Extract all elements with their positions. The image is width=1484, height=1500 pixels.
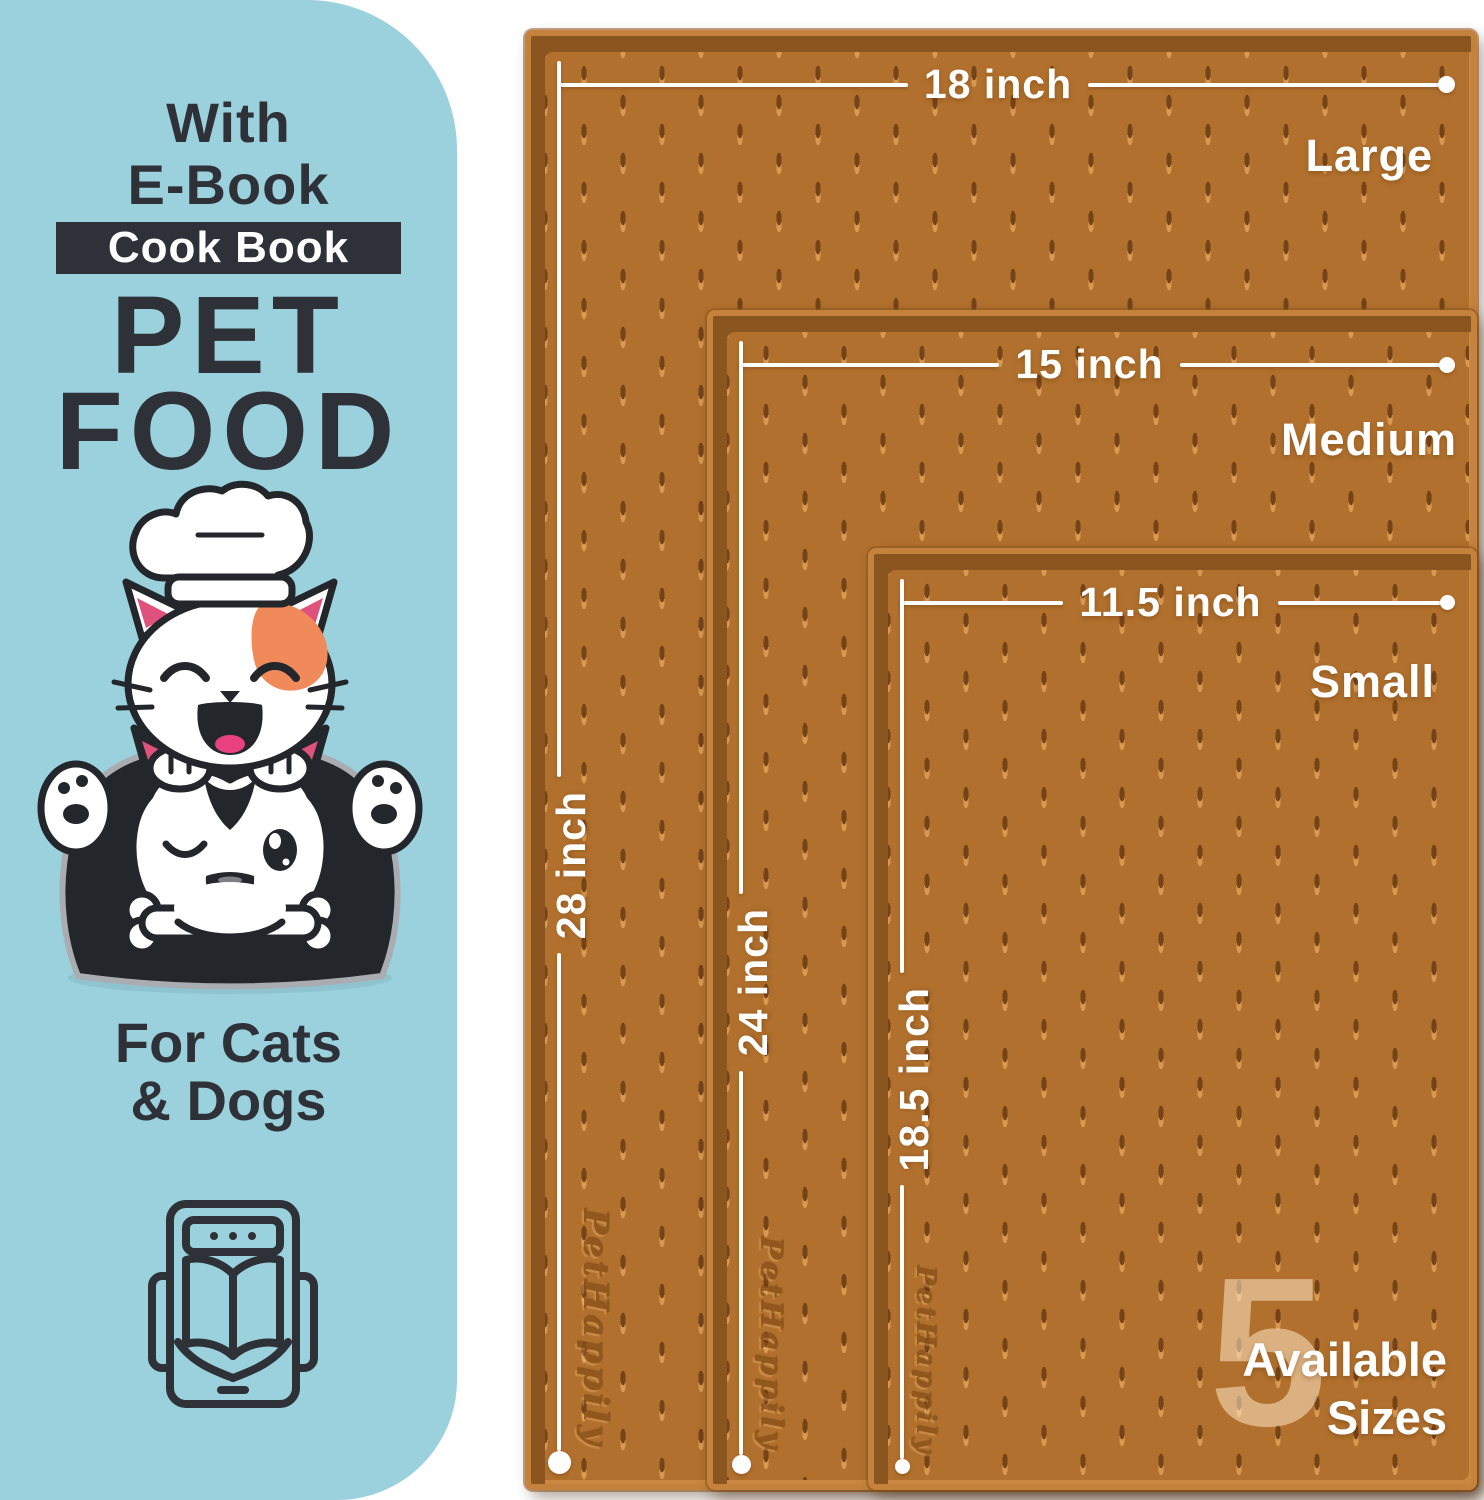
available-sizes-text: Available Sizes: [1242, 1331, 1447, 1446]
measure-line: [739, 363, 999, 367]
measure-dot: [1439, 357, 1455, 373]
measure-line: [739, 1071, 743, 1455]
and-dogs-text: & Dogs: [0, 1072, 457, 1130]
measure-line: [900, 579, 904, 973]
mat-small: 11.5 inch 18.5 inch Small PetHappily 5 A…: [868, 548, 1477, 1490]
measure-dot: [895, 1459, 910, 1474]
chef-cat-and-dog-illustration: [30, 478, 430, 998]
size-name-large: Large: [1305, 130, 1433, 182]
measure-line: [557, 83, 908, 87]
width-label-large: 18 inch: [924, 61, 1072, 108]
chef-hat-icon: [133, 484, 310, 604]
embossed-brand-text: PetHappily: [575, 1209, 615, 1448]
measure-line: [900, 601, 1063, 605]
left-info-panel: With E-Book Cook Book PET FOOD: [0, 0, 457, 1500]
measure-line: [1278, 601, 1441, 605]
height-label-medium: 24 inch: [730, 908, 777, 1056]
width-label-small: 11.5 inch: [1079, 579, 1261, 626]
with-text: With: [0, 92, 457, 154]
measure-dot: [732, 1455, 751, 1474]
width-measurement-large: 18 inch: [557, 61, 1455, 108]
measure-line: [900, 1185, 904, 1459]
measure-dot: [1438, 76, 1455, 93]
audience-text: For Cats & Dogs: [0, 1014, 457, 1130]
ebook-text: E-Book: [0, 154, 457, 216]
cookbook-badge: Cook Book: [56, 222, 401, 274]
measure-line: [739, 341, 743, 894]
product-title: PET FOOD: [0, 288, 457, 480]
measure-dot: [1440, 595, 1455, 610]
cat-tongue: [215, 735, 245, 753]
ebook-callout: With E-Book: [0, 92, 457, 216]
available-text: Available: [1242, 1331, 1447, 1388]
embossed-brand-text: PetHappily: [753, 1237, 788, 1452]
embossed-brand-text: PetHappily: [910, 1266, 940, 1456]
size-name-small: Small: [1310, 656, 1435, 708]
sizes-text: Sizes: [1242, 1389, 1447, 1446]
product-infographic: With E-Book Cook Book PET FOOD: [0, 0, 1484, 1500]
height-label-small: 18.5 inch: [891, 987, 938, 1171]
measure-line: [1088, 83, 1439, 87]
measure-line: [1180, 363, 1440, 367]
size-name-medium: Medium: [1281, 414, 1457, 466]
title-line-food: FOOD: [0, 384, 457, 480]
width-label-medium: 15 inch: [1015, 341, 1163, 388]
measure-line: [557, 61, 561, 777]
width-measurement-medium: 15 inch: [739, 341, 1455, 388]
measure-dot: [548, 1451, 571, 1474]
width-measurement-small: 11.5 inch: [900, 579, 1455, 626]
ebook-icon: [148, 1196, 318, 1412]
for-cats-text: For Cats: [0, 1014, 457, 1072]
height-label-large: 28 inch: [548, 791, 595, 939]
measure-line: [557, 953, 561, 1451]
dog-open-eye: [263, 829, 297, 871]
